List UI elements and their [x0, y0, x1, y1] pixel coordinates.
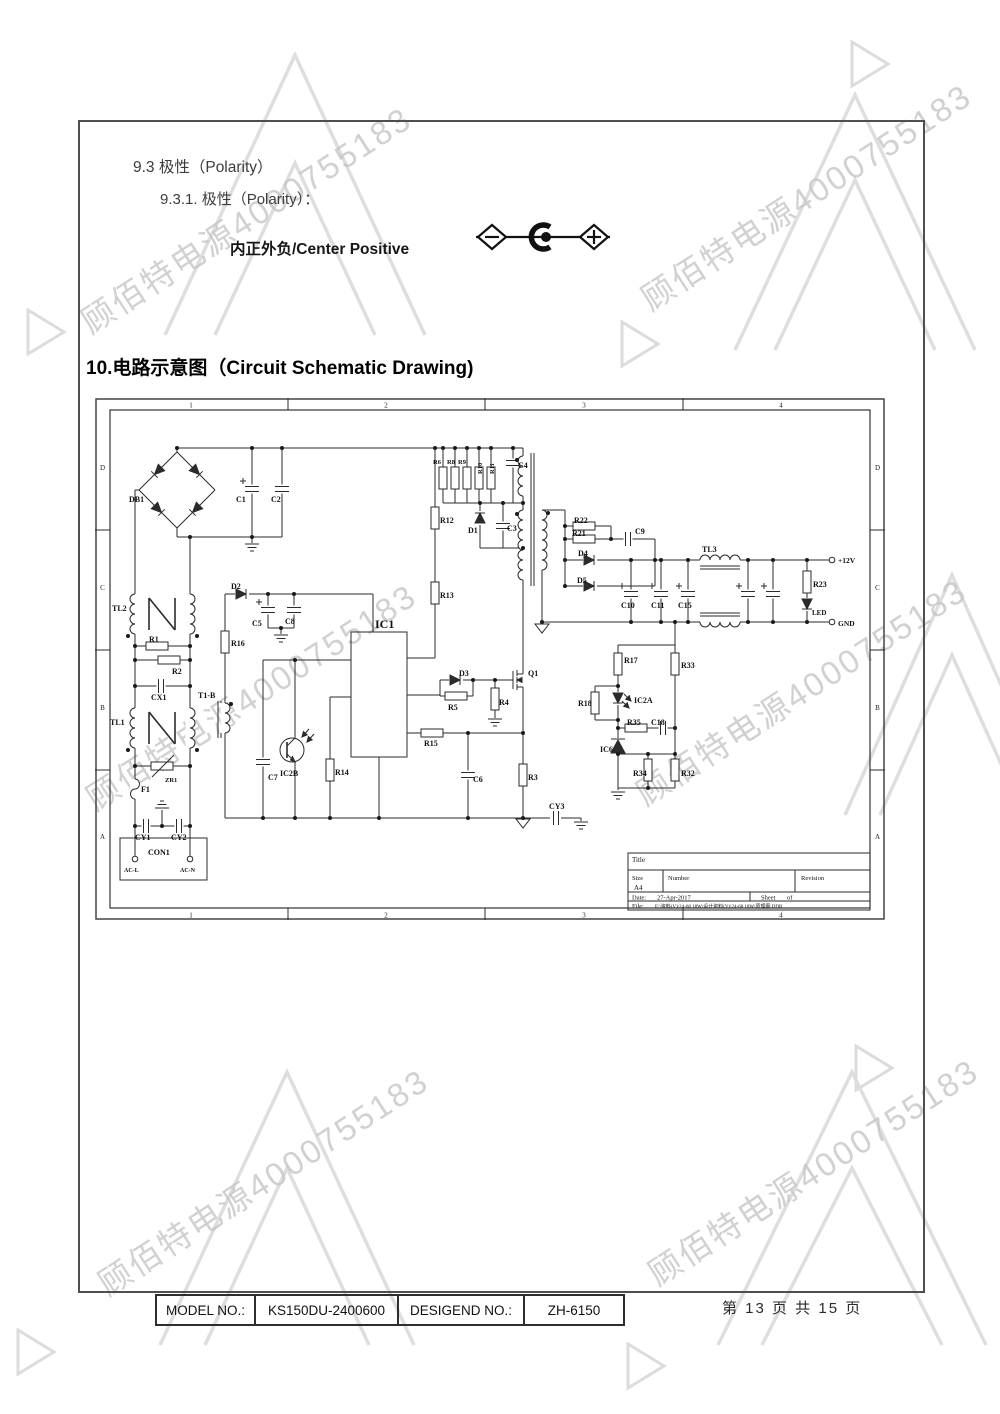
schematic-label: C7: [268, 773, 278, 782]
border-col-label: 2: [384, 912, 388, 920]
schematic-label: AC-N: [180, 868, 196, 874]
schematic-label: D4: [578, 549, 588, 558]
schematic-label: R14: [335, 768, 349, 777]
schematic-label: IC2A: [634, 696, 653, 705]
schematic-label: C4: [518, 461, 528, 470]
schematic-label: +12V: [838, 556, 856, 565]
schematic-label: R15: [424, 739, 438, 748]
schematic-label: C3: [507, 524, 517, 533]
polarity-description: 内正外负/Center Positive: [230, 237, 409, 259]
schematic-label: R21: [572, 529, 586, 538]
schematic-label: DB1: [129, 495, 144, 504]
schematic-label: C6: [473, 775, 483, 784]
title-block-size_value: A4: [634, 884, 643, 892]
schematic-label: IC2B: [280, 769, 299, 778]
schematic-label: R35: [627, 718, 641, 727]
schematic-label: R9: [458, 459, 467, 466]
border-col-label: 2: [384, 402, 388, 410]
title-block-revision_label: Revision: [801, 875, 825, 882]
border-row-label: B: [100, 704, 105, 712]
title-block-number_label: Number: [668, 875, 690, 882]
schematic-label: R22: [574, 516, 588, 525]
schematic-label: R5: [448, 703, 458, 712]
border-row-label: C: [100, 584, 105, 592]
schematic-label: D5: [577, 576, 587, 585]
design-no-label: DESIGEND NO.:: [397, 1296, 523, 1324]
schematic-label: CY3: [549, 802, 565, 811]
schematic-label: T1-B: [198, 691, 216, 700]
section-heading-10: 10.电路示意图（Circuit Schematic Drawing): [86, 353, 473, 380]
schematic-label: TL2: [112, 604, 127, 613]
schematic-label: C15: [678, 601, 692, 610]
border-col-label: 1: [189, 402, 193, 410]
title-block-file_label: File:: [632, 903, 644, 910]
schematic-label: R3: [528, 773, 538, 782]
schematic-label: R8: [447, 459, 456, 466]
schematic-label: IC1: [375, 617, 394, 631]
footer-table: MODEL NO.: KS150DU-2400600 DESIGEND NO.:…: [155, 1294, 625, 1326]
schematic-label: R32: [681, 769, 695, 778]
schematic-label: LED: [812, 609, 826, 617]
border-row-label: B: [875, 704, 880, 712]
model-no-value: KS150DU-2400600: [254, 1296, 397, 1324]
schematic-label: R12: [440, 516, 454, 525]
title-block-of_label: of: [787, 895, 793, 902]
schematic-label: C1: [236, 495, 246, 504]
schematic-label: R16: [231, 639, 245, 648]
schematic-label: AC-L: [124, 868, 139, 874]
title-block-file_value: E:\资料(V)\24-68 18W\设计资料(V)\24-68 18W\原理图…: [655, 903, 783, 910]
schematic-label: IC6: [600, 745, 613, 754]
schematic-label: R4: [499, 698, 509, 707]
schematic-label: Q1: [528, 669, 538, 678]
schematic-label: C5: [252, 619, 262, 628]
schematic-label: CY1: [135, 833, 151, 842]
title-block-date_label: Date:: [632, 895, 646, 902]
schematic-label: R11: [489, 463, 496, 474]
schematic-label: CON1: [148, 848, 170, 857]
design-no-value: ZH-6150: [523, 1296, 623, 1324]
border-row-label: A: [100, 833, 105, 841]
border-row-label: C: [875, 584, 880, 592]
document-page: { "document": { "section_9_3": "9.3 极性（P…: [0, 0, 1000, 1414]
schematic-label: TL3: [702, 545, 717, 554]
polarity-symbol: [468, 212, 620, 262]
schematic-label: R33: [681, 661, 695, 670]
schematic-label: GND: [838, 619, 855, 628]
schematic-label: ZR1: [165, 777, 177, 784]
model-no-label: MODEL NO.:: [157, 1296, 254, 1324]
border-row-label: A: [875, 833, 880, 841]
schematic-label: R1: [149, 635, 159, 644]
border-col-label: 3: [582, 402, 586, 410]
schematic-label: R13: [440, 591, 454, 600]
border-col-label: 4: [779, 402, 783, 410]
schematic-label: CY2: [171, 833, 187, 842]
schematic-label: R18: [578, 699, 592, 708]
circuit-schematic: DB1C1C2TL2R1R2CX1TL1ZR1F1CY1CY2CON1AC-LA…: [95, 398, 885, 920]
section-heading-9-3: 9.3 极性（Polarity）: [133, 155, 273, 177]
section-heading-9-3-1: 9.3.1. 极性（Polarity）：: [160, 188, 319, 209]
border-row-label: D: [100, 464, 105, 472]
schematic-label: D3: [459, 669, 469, 678]
schematic-label: R23: [813, 580, 827, 589]
schematic-label: R34: [633, 769, 647, 778]
center-pin-icon: [541, 232, 551, 242]
schematic-label: C11: [651, 601, 664, 610]
schematic-label: C18: [651, 718, 665, 727]
border-row-label: D: [875, 464, 880, 472]
schematic-label: R6: [433, 459, 442, 466]
schematic-label: CX1: [151, 693, 167, 702]
title-block-size_label: Size: [632, 875, 643, 882]
schematic-label: C2: [271, 495, 281, 504]
schematic-label: F1: [141, 785, 150, 794]
page-number: 第 13 页 共 15 页: [722, 1297, 862, 1318]
schematic-label: D1: [468, 526, 478, 535]
schematic-label: TL1: [110, 718, 125, 727]
schematic-label: D2: [231, 582, 241, 591]
title-block-sheet_label: Sheet: [761, 895, 776, 902]
schematic-label: R17: [624, 656, 638, 665]
schematic-label: C9: [635, 527, 645, 536]
schematic-label: C10: [621, 601, 635, 610]
border-col-label: 4: [779, 912, 783, 920]
border-col-label: 3: [582, 912, 586, 920]
title-block-date_value: 27-Apr-2017: [657, 895, 692, 902]
schematic-label: R10: [477, 463, 484, 474]
schematic-label: C8: [285, 617, 295, 626]
border-col-label: 1: [189, 912, 193, 920]
circuit-schematic-svg: DB1C1C2TL2R1R2CX1TL1ZR1F1CY1CY2CON1AC-LA…: [95, 398, 885, 920]
schematic-wiring: [95, 398, 885, 920]
schematic-label: R2: [172, 667, 182, 676]
title-block-title_label: Title: [632, 856, 645, 864]
